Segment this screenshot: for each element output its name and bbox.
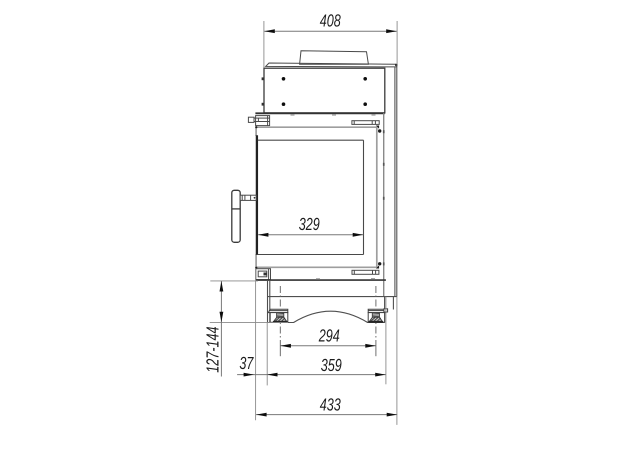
svg-text:127-144: 127-144 [202,326,222,372]
svg-text:294: 294 [318,325,340,345]
svg-text:408: 408 [320,11,341,31]
svg-text:329: 329 [299,214,320,234]
svg-text:359: 359 [321,355,342,375]
svg-text:433: 433 [320,394,341,414]
svg-text:37: 37 [239,353,254,373]
